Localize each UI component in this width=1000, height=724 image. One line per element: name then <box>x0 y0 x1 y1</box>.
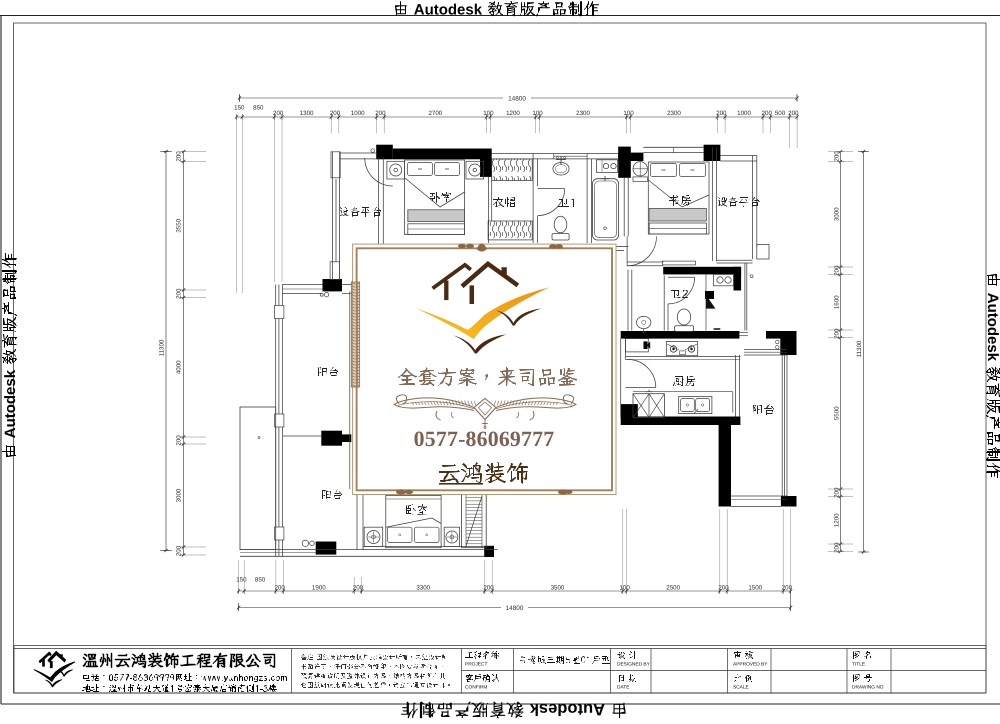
svg-text:200: 200 <box>788 110 799 117</box>
svg-text:850: 850 <box>255 577 266 584</box>
svg-text:TITLE: TITLE <box>852 662 865 668</box>
svg-text:4000: 4000 <box>176 360 183 374</box>
svg-text:3000: 3000 <box>176 488 183 502</box>
svg-text:SCALE: SCALE <box>733 685 749 691</box>
svg-text:DESIGNED BY: DESIGNED BY <box>617 662 651 668</box>
svg-text:150: 150 <box>234 105 245 112</box>
svg-text:200: 200 <box>834 151 841 162</box>
svg-text:2700: 2700 <box>428 110 442 117</box>
svg-text:1500: 1500 <box>748 584 762 591</box>
svg-text:200: 200 <box>330 110 341 117</box>
svg-text:1900: 1900 <box>312 584 326 591</box>
svg-text:200: 200 <box>176 545 183 556</box>
svg-text:850: 850 <box>253 105 264 112</box>
svg-text:3000: 3000 <box>834 207 841 221</box>
svg-text:100: 100 <box>532 110 543 117</box>
svg-text:14800: 14800 <box>506 605 524 612</box>
svg-text:200: 200 <box>273 110 284 117</box>
svg-text:11300: 11300 <box>856 340 863 357</box>
svg-text:200: 200 <box>762 110 773 117</box>
svg-text:100: 100 <box>623 110 634 117</box>
svg-text:200: 200 <box>176 435 183 446</box>
svg-text:CONFIRM: CONFIRM <box>465 685 487 691</box>
svg-text:14800: 14800 <box>508 96 526 103</box>
svg-text:3300: 3300 <box>416 584 430 591</box>
svg-text:DRAWING NO: DRAWING NO <box>852 685 884 691</box>
svg-text:11300: 11300 <box>159 339 166 356</box>
svg-text:1000: 1000 <box>351 110 365 117</box>
svg-text:2500: 2500 <box>666 584 680 591</box>
svg-text:100: 100 <box>619 584 630 591</box>
svg-text:1200: 1200 <box>506 110 520 117</box>
svg-text:2300: 2300 <box>667 110 681 117</box>
svg-text:APPROVED BY: APPROVED BY <box>733 662 768 668</box>
svg-text:DATE: DATE <box>617 685 629 691</box>
svg-text:200: 200 <box>716 110 727 117</box>
svg-text:1300: 1300 <box>300 110 314 117</box>
svg-text:3500: 3500 <box>551 584 565 591</box>
svg-text:PROJECT: PROJECT <box>465 662 487 668</box>
svg-text:150: 150 <box>236 577 247 584</box>
svg-text:500: 500 <box>775 110 786 117</box>
svg-text:100: 100 <box>483 110 494 117</box>
svg-text:5500: 5500 <box>834 406 841 420</box>
svg-text:0577-86069777: 0577-86069777 <box>414 427 555 451</box>
svg-text:200: 200 <box>176 288 183 299</box>
svg-text:2300: 2300 <box>576 110 590 117</box>
svg-text:1200: 1200 <box>834 513 841 527</box>
svg-text:200: 200 <box>176 151 183 162</box>
svg-text:Autodesk: Autodesk <box>414 1 483 18</box>
svg-text:3550: 3550 <box>176 218 183 232</box>
svg-text:1000: 1000 <box>737 110 751 117</box>
svg-text:1600: 1600 <box>834 295 841 309</box>
svg-text:200: 200 <box>375 110 386 117</box>
